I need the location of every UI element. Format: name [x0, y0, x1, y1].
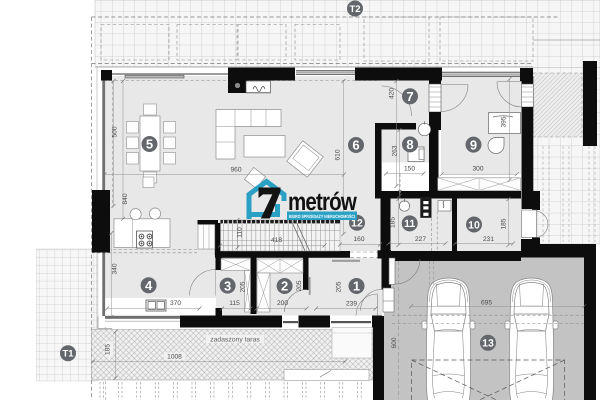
svg-text:960: 960 — [230, 167, 241, 174]
svg-text:zadaszony taras: zadaszony taras — [210, 336, 260, 343]
svg-text:1: 1 — [353, 279, 360, 294]
svg-text:420: 420 — [389, 88, 396, 99]
svg-text:418: 418 — [271, 237, 282, 244]
svg-text:205: 205 — [240, 281, 247, 292]
svg-text:500: 500 — [112, 126, 119, 137]
svg-text:227: 227 — [415, 236, 426, 243]
svg-text:205: 205 — [336, 281, 343, 292]
svg-text:300: 300 — [472, 166, 483, 173]
svg-text:4: 4 — [145, 278, 153, 293]
svg-text:185: 185 — [105, 344, 112, 355]
svg-text:1008: 1008 — [167, 354, 182, 361]
svg-text:7: 7 — [406, 89, 413, 104]
svg-text:695: 695 — [481, 300, 492, 307]
svg-text:231: 231 — [483, 236, 494, 243]
svg-text:185: 185 — [390, 217, 397, 228]
svg-text:2: 2 — [281, 279, 288, 294]
svg-text:840: 840 — [122, 193, 129, 204]
svg-text:BIURO SPRZEDAŻY NIERUCHOMOŚCI: BIURO SPRZEDAŻY NIERUCHOMOŚCI — [289, 213, 355, 219]
svg-text:11: 11 — [404, 218, 415, 230]
svg-text:6: 6 — [352, 138, 359, 153]
svg-text:8: 8 — [406, 137, 413, 152]
svg-text:T2: T2 — [349, 4, 360, 15]
svg-text:340: 340 — [112, 263, 119, 274]
svg-text:395: 395 — [501, 116, 508, 127]
svg-text:600: 600 — [391, 337, 398, 348]
svg-text:5: 5 — [146, 137, 153, 152]
svg-text:185: 185 — [501, 218, 508, 229]
svg-text:200: 200 — [277, 300, 288, 307]
svg-text:205: 205 — [296, 280, 303, 291]
svg-text:3: 3 — [224, 278, 231, 293]
svg-text:150: 150 — [404, 166, 415, 173]
svg-text:110: 110 — [237, 227, 244, 238]
svg-text:610: 610 — [335, 149, 342, 160]
svg-text:T1: T1 — [62, 349, 74, 360]
svg-text:10: 10 — [468, 219, 480, 231]
svg-text:13: 13 — [482, 338, 494, 350]
svg-text:115: 115 — [229, 300, 240, 307]
svg-text:263: 263 — [392, 145, 399, 156]
svg-text:370: 370 — [170, 300, 181, 307]
svg-text:239: 239 — [346, 301, 357, 308]
svg-text:9: 9 — [470, 137, 477, 152]
svg-text:160: 160 — [353, 236, 364, 243]
